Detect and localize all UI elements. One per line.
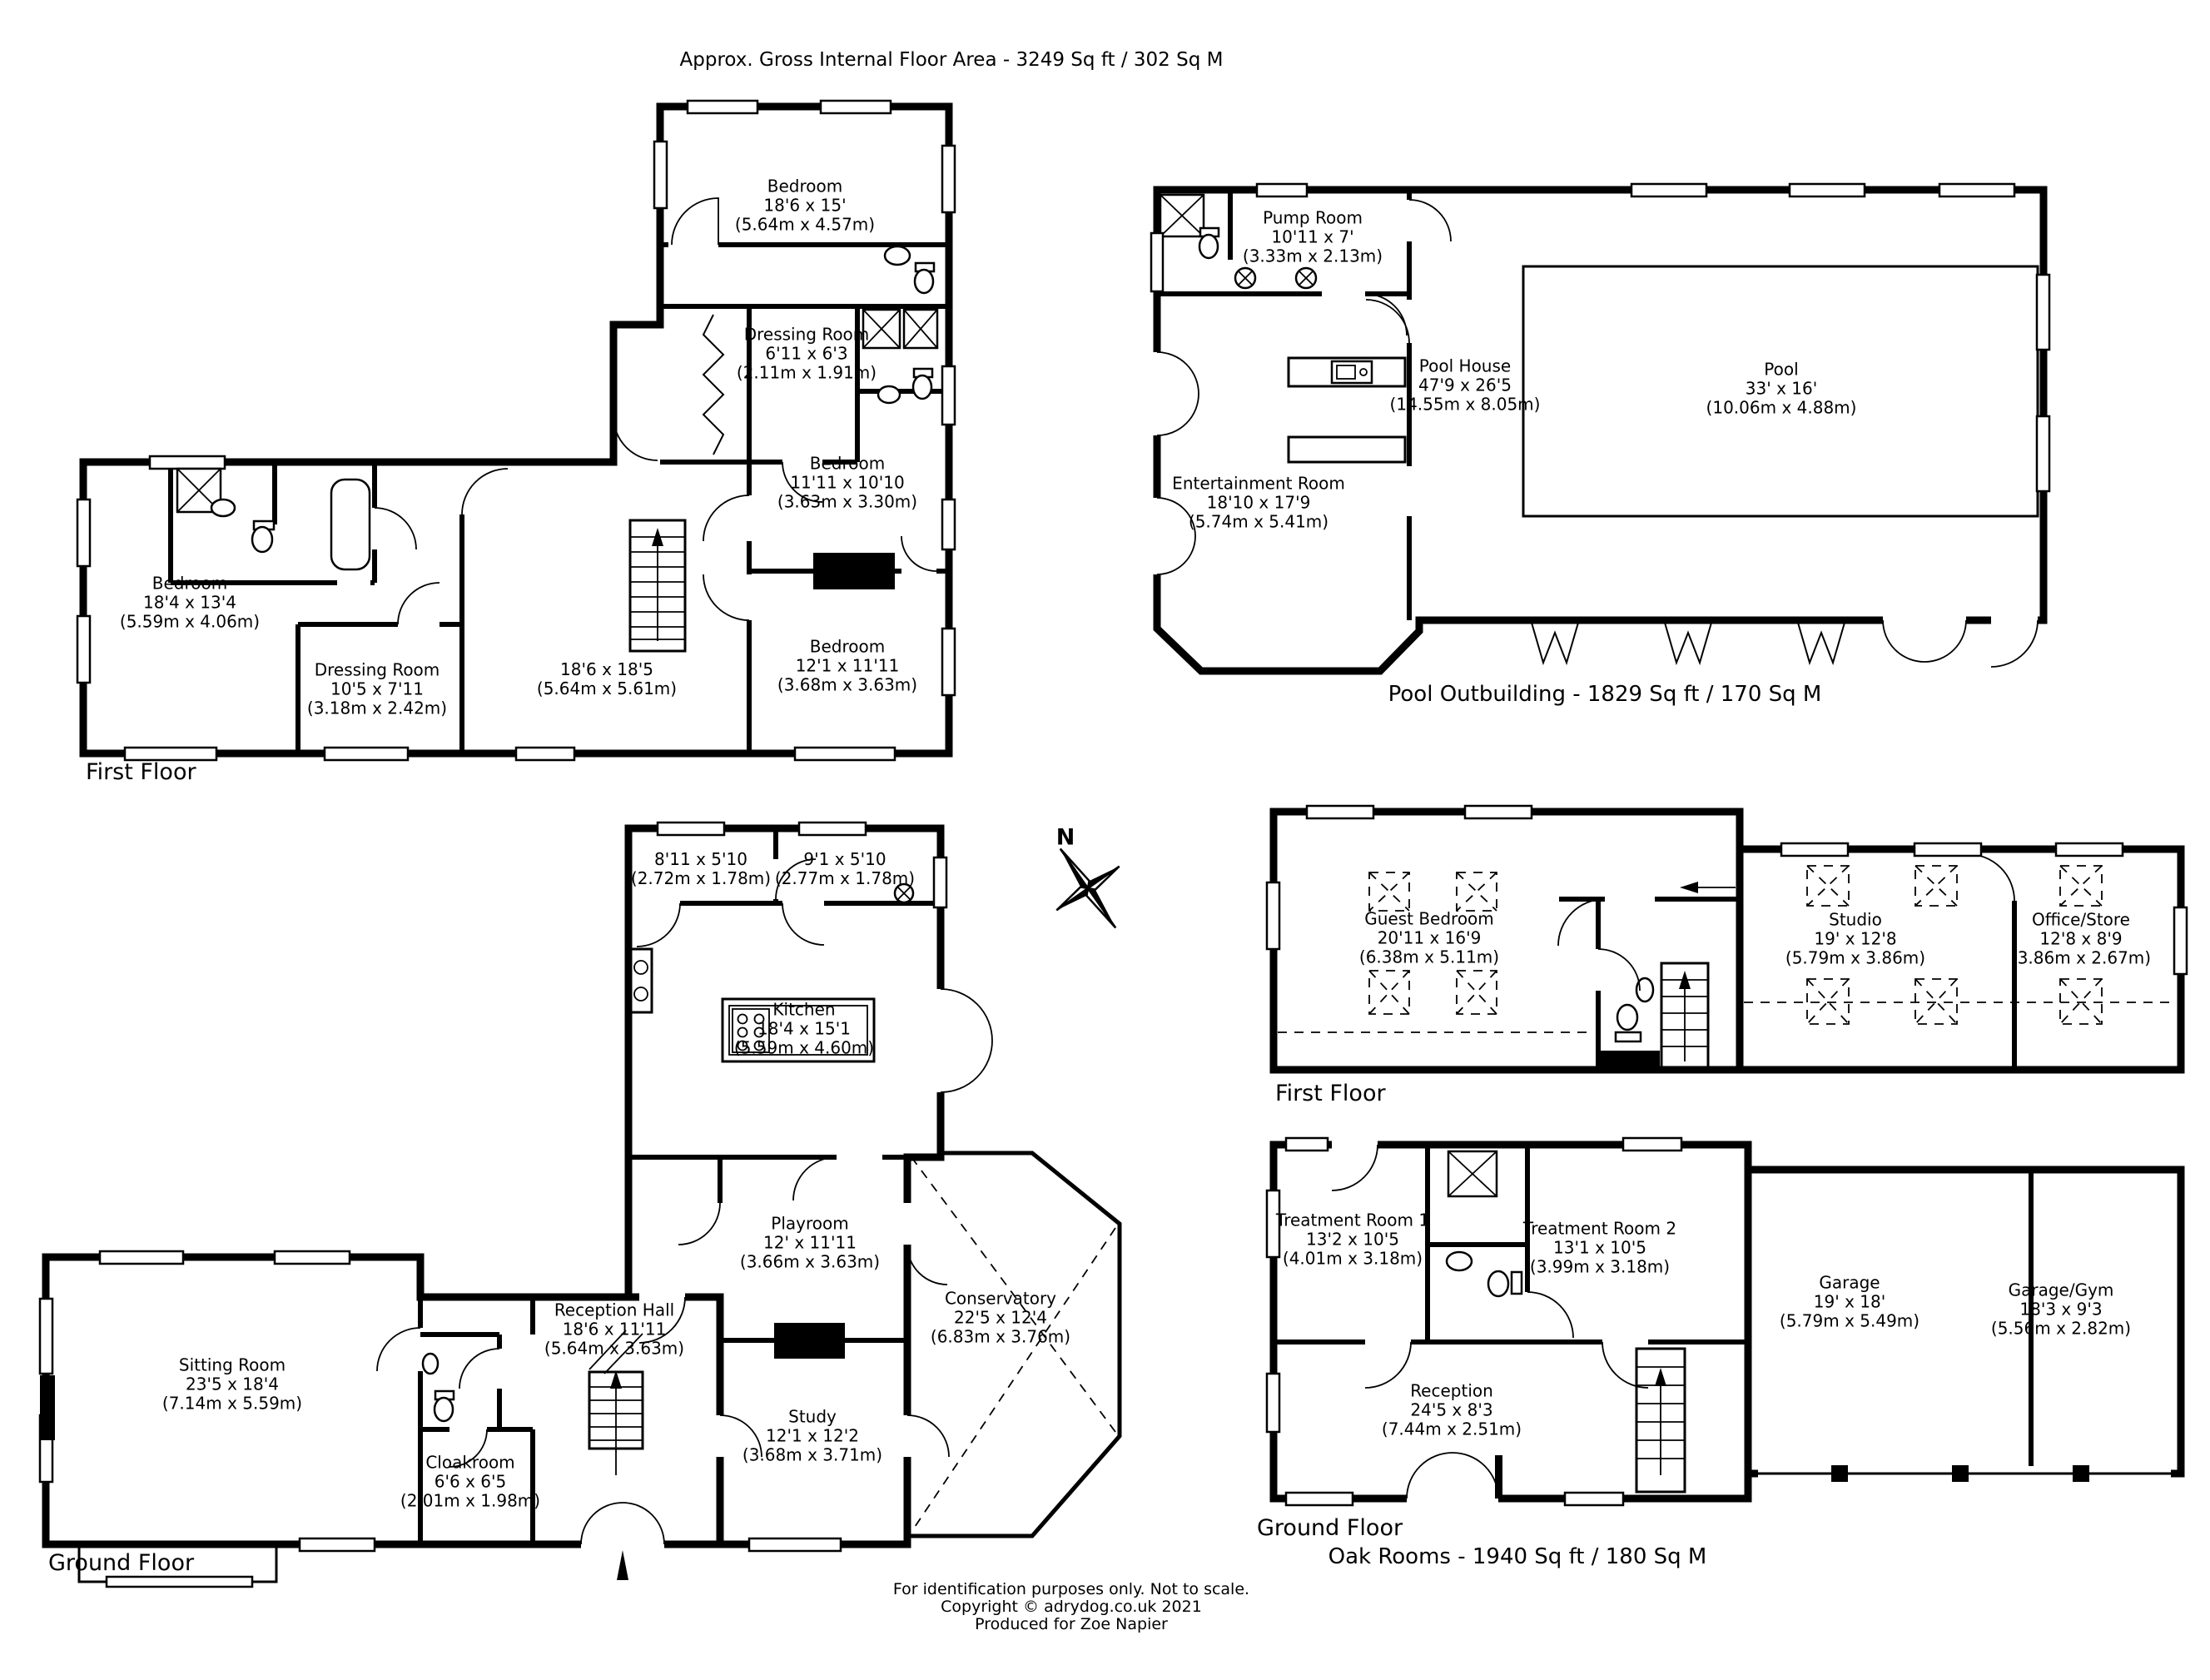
floorplan-drawing (0, 0, 2210, 1680)
garage-post (2073, 1465, 2089, 1482)
floor-label-first-floor: First Floor (1275, 1081, 1386, 1106)
room-label-treatment-room-1: Treatment Room 1 13'2 x 10'5 (4.01m x 3.… (1276, 1211, 1429, 1269)
room-label-conservatory: Conservatory 22'5 x 12'4 (6.83m x 3.76m) (931, 1290, 1070, 1347)
room-label-small-room: 8'11 x 5'10 (2.72m x 1.78m) (631, 850, 771, 888)
garage-post (1831, 1465, 1848, 1482)
room-label-cloakroom: Cloakroom 6'6 x 6'5 (2.01m x 1.98m) (400, 1454, 540, 1511)
room-label-reception-hall: Reception Hall 18'6 x 11'11 (5.64m x 3.6… (544, 1301, 684, 1359)
chimney-breast (813, 553, 895, 589)
floorplan-page: { "title": "Approx. Gross Internal Floor… (0, 0, 2210, 1680)
room-label-bedroom: Bedroom 18'4 x 13'4 (5.59m x 4.06m) (120, 574, 260, 632)
compass-north-label: N (1056, 825, 1075, 851)
room-label-pool-house: Pool House 47'9 x 26'5 (14.55m x 8.05m) (1390, 357, 1541, 415)
room-label-landing: 18'6 x 18'5 (5.64m x 5.61m) (537, 660, 677, 698)
floor-label-ground-floor: Ground Floor (48, 1550, 194, 1576)
garage-post (1952, 1465, 1969, 1482)
room-label-pool: Pool 33' x 16' (10.06m x 4.88m) (1706, 360, 1857, 418)
room-label-small-room: 9'1 x 5'10 (2.77m x 1.78m) (775, 850, 915, 888)
room-label-playroom: Playroom 12' x 11'11 (3.66m x 3.63m) (740, 1215, 880, 1272)
room-label-reception: Reception 24'5 x 8'3 (7.44m x 2.51m) (1382, 1382, 1522, 1439)
area-label-pool-outbuilding: Pool Outbuilding - 1829 Sq ft / 170 Sq M (1388, 682, 1822, 707)
floor-label-ground-floor: Ground Floor (1257, 1515, 1403, 1541)
room-label-bedroom: Bedroom 18'6 x 15' (5.64m x 4.57m) (735, 177, 875, 235)
fireplace (40, 1375, 55, 1440)
room-label-pump-room: Pump Room 10'11 x 7' (3.33m x 2.13m) (1243, 209, 1383, 266)
room-label-guest-bedroom: Guest Bedroom 20'11 x 16'9 (6.38m x 5.11… (1359, 910, 1499, 967)
room-label-entertainment-room: Entertainment Room 18'10 x 17'9 (5.74m x… (1172, 475, 1345, 532)
bifold-door-icon (1532, 623, 1845, 663)
page-title: Approx. Gross Internal Floor Area - 3249… (680, 49, 1224, 71)
room-label-dressing-room: Dressing Room 10'5 x 7'11 (3.18m x 2.42m… (307, 661, 447, 718)
room-label-bedroom: Bedroom 12'1 x 11'11 (3.68m x 3.63m) (777, 638, 917, 695)
room-label-dressing-room: Dressing Room 6'11 x 6'3 (2.11m x 1.91m) (737, 326, 877, 383)
room-label-sitting-room: Sitting Room 23'5 x 18'4 (7.14m x 5.59m) (162, 1356, 302, 1414)
room-label-kitchen: Kitchen 18'4 x 15'1 (5.59m x 4.60m) (734, 1001, 874, 1058)
room-label-bedroom: Bedroom 11'11 x 10'10 (3.63m x 3.30m) (777, 455, 917, 512)
floor-label-first-floor: First Floor (86, 759, 196, 785)
room-label-studio: Studio 19' x 12'8 (5.79m x 3.86m) (1785, 911, 1925, 968)
door-leaf (1495, 1455, 1502, 1499)
sink-icon (1332, 361, 1372, 383)
room-label-office-store: Office/Store 12'8 x 8'9 (3.86m x 2.67m) (2011, 911, 2151, 968)
footer-note: For identification purposes only. Not to… (893, 1581, 1249, 1633)
main-house-ground-floor-plan (40, 823, 1120, 1587)
room-label-garage-gym: Garage/Gym 18'3 x 9'3 (5.56m x 2.82m) (1991, 1281, 2131, 1339)
room-label-treatment-room-2: Treatment Room 2 13'1 x 10'5 (3.99m x 3.… (1523, 1220, 1676, 1277)
area-label-oak-rooms: Oak Rooms - 1940 Sq ft / 180 Sq M (1328, 1544, 1707, 1569)
room-label-study: Study 12'1 x 12'2 (3.68m x 3.71m) (742, 1408, 882, 1465)
chimney-breast (774, 1323, 845, 1359)
compass-icon (1029, 827, 1147, 950)
entrance-arrow-icon (617, 1550, 628, 1580)
room-label-garage: Garage 19' x 18' (5.79m x 5.49m) (1780, 1274, 1919, 1331)
